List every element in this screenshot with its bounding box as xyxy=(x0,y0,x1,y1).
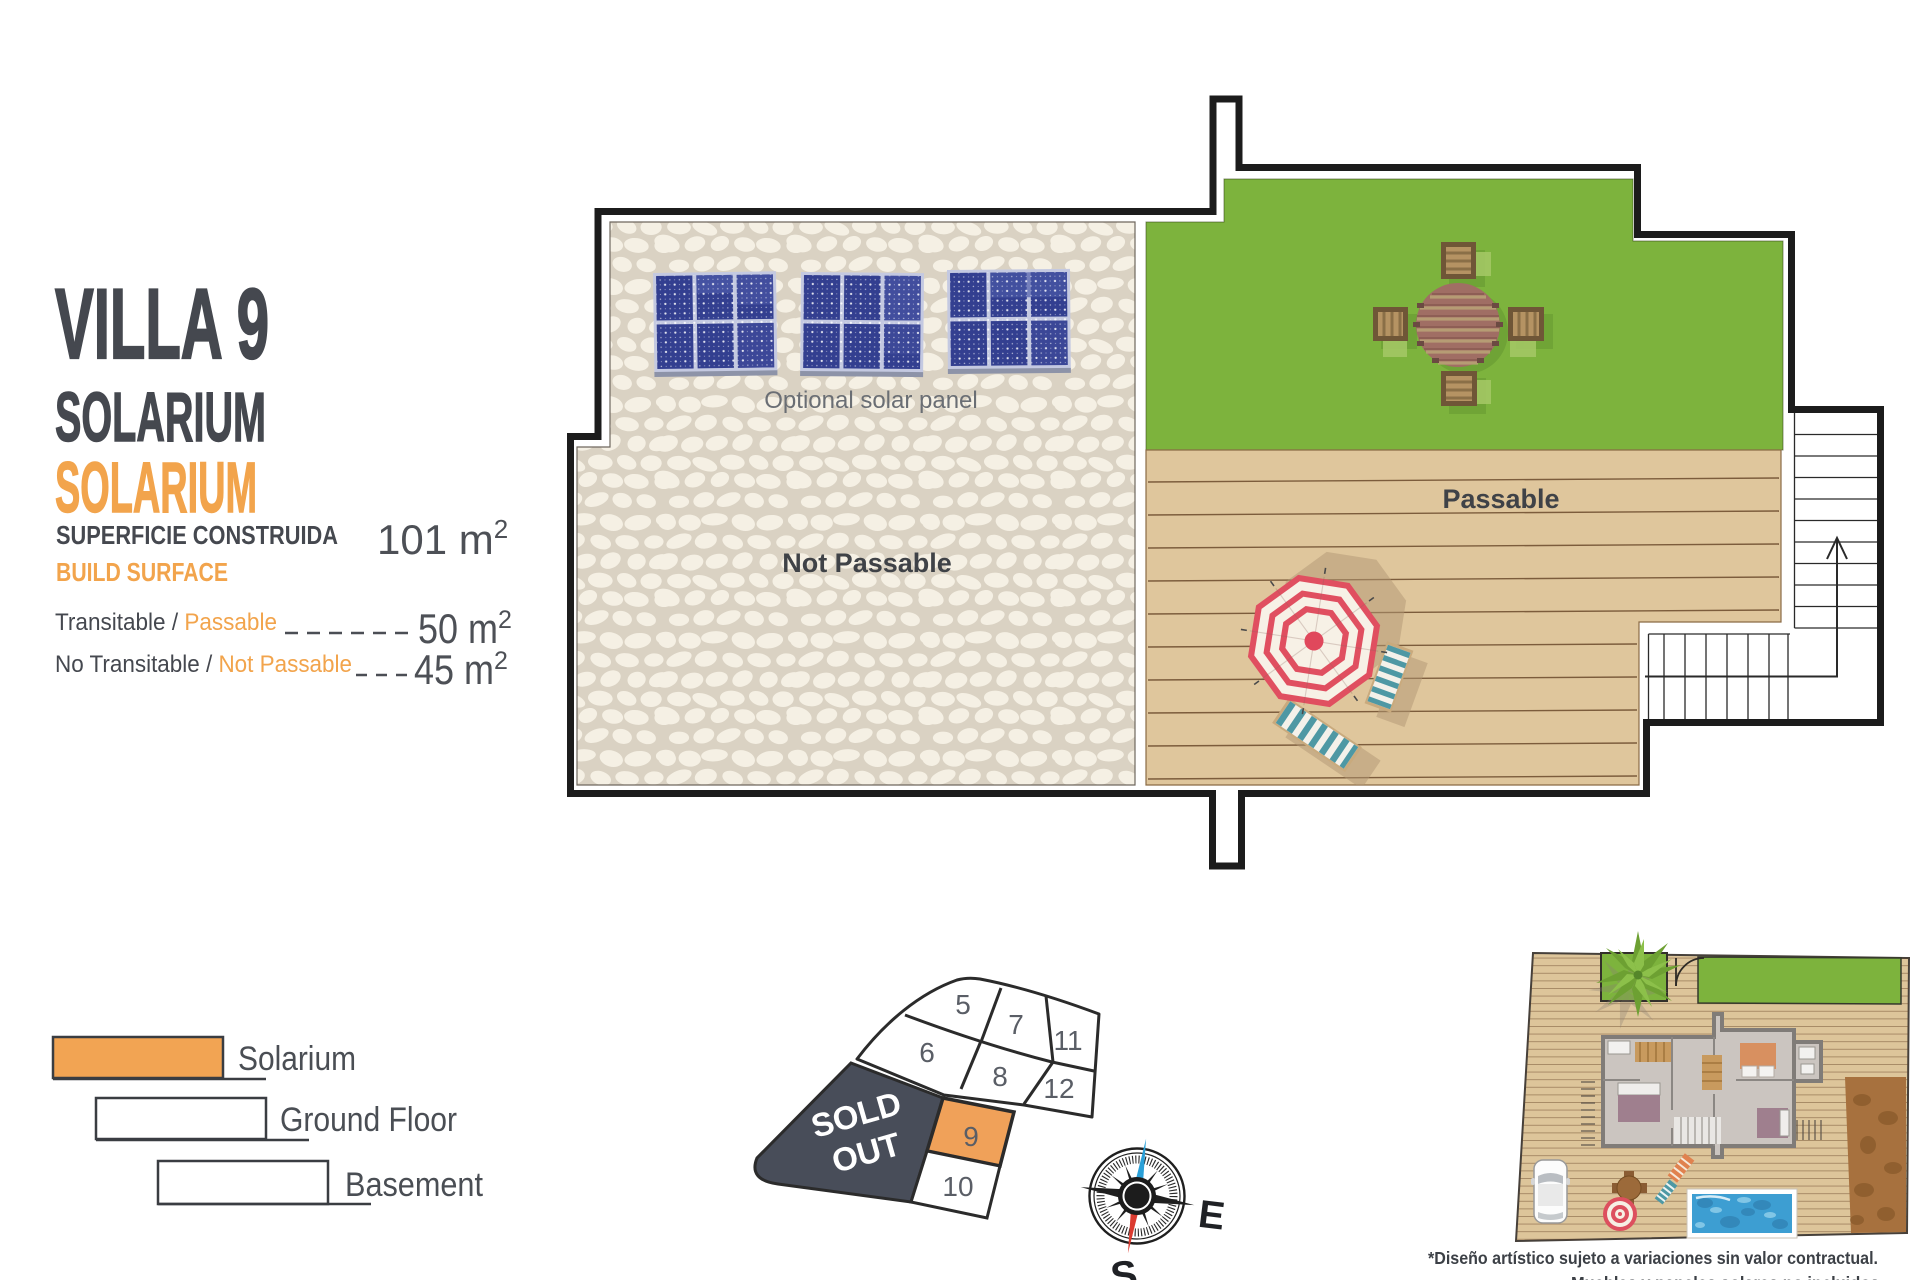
svg-text:45 m2: 45 m2 xyxy=(414,646,508,693)
svg-text:Transitable / Passable: Transitable / Passable xyxy=(55,609,277,636)
svg-text:Passable: Passable xyxy=(1442,484,1559,514)
svg-text:12: 12 xyxy=(1043,1073,1074,1104)
svg-text:SOLARIUM: SOLARIUM xyxy=(55,449,257,528)
svg-text:SOLARIUM: SOLARIUM xyxy=(55,378,266,456)
svg-text:Optional solar panel: Optional solar panel xyxy=(764,387,977,414)
svg-text:BUILD SURFACE: BUILD SURFACE xyxy=(56,557,228,587)
svg-text:Ground Floor: Ground Floor xyxy=(280,1101,457,1139)
svg-text:6: 6 xyxy=(919,1037,935,1068)
svg-text:50 m2: 50 m2 xyxy=(418,605,512,652)
svg-text:Muebles y paneles solares no i: Muebles y paneles solares no incluidos. xyxy=(1571,1273,1884,1280)
svg-text:8: 8 xyxy=(992,1061,1008,1092)
svg-text:10: 10 xyxy=(942,1171,973,1202)
svg-text:No Transitable / Not Passable: No Transitable / Not Passable xyxy=(55,651,352,678)
svg-text:Solarium: Solarium xyxy=(238,1040,356,1078)
svg-text:9: 9 xyxy=(963,1121,979,1152)
svg-text:SUPERFICIE CONSTRUIDA: SUPERFICIE CONSTRUIDA xyxy=(56,520,338,550)
svg-text:Not Passable: Not Passable xyxy=(782,548,952,578)
svg-text:101 m2: 101 m2 xyxy=(377,514,508,563)
svg-text:E: E xyxy=(1196,1193,1227,1239)
svg-text:7: 7 xyxy=(1008,1009,1024,1040)
svg-text:Basement: Basement xyxy=(345,1166,483,1204)
svg-text:VILLA 9: VILLA 9 xyxy=(55,268,269,379)
svg-text:11: 11 xyxy=(1053,1025,1082,1056)
svg-text:*Diseño artístico sujeto a var: *Diseño artístico sujeto a variaciones s… xyxy=(1428,1248,1878,1268)
svg-text:5: 5 xyxy=(955,989,971,1020)
